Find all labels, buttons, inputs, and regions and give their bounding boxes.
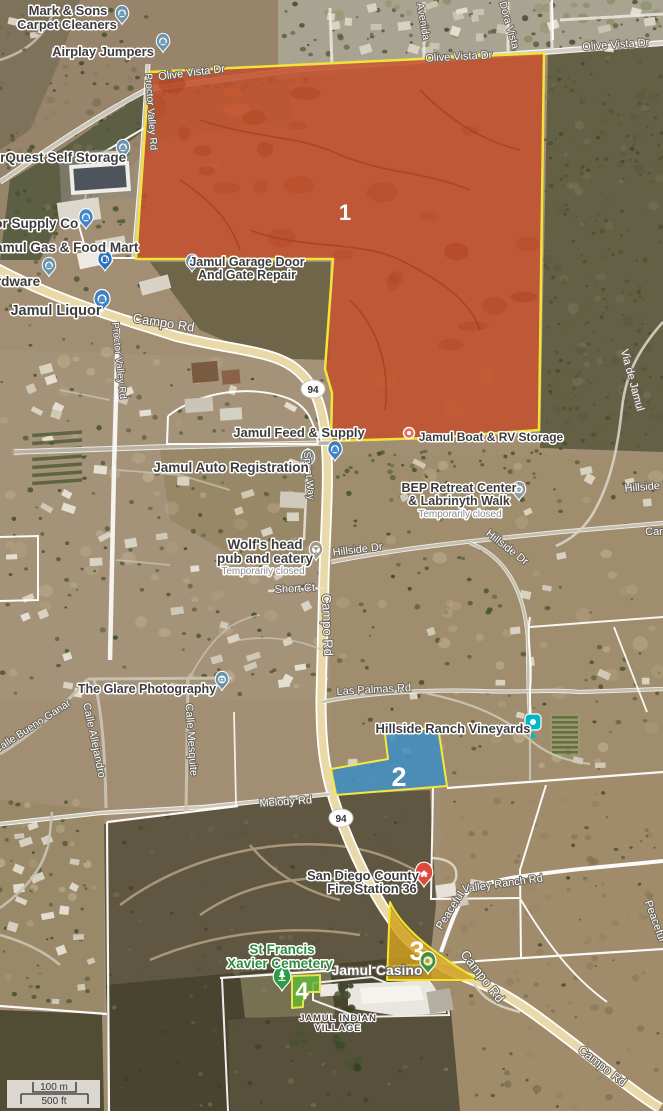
svg-text:rdware: rdware xyxy=(0,274,41,289)
svg-text:Jamul Feed & Supply: Jamul Feed & Supply xyxy=(233,425,365,440)
svg-text:tor Supply Co: tor Supply Co xyxy=(0,216,78,231)
svg-text:Fire Station 36: Fire Station 36 xyxy=(327,881,417,896)
svg-text:Hillside Ranch Vineyards: Hillside Ranch Vineyards xyxy=(375,721,530,736)
svg-text:Jamul Auto Registration: Jamul Auto Registration xyxy=(153,460,309,475)
svg-text:Car: Car xyxy=(645,526,663,538)
svg-text:Airplay Jumpers: Airplay Jumpers xyxy=(52,44,154,59)
svg-text:100 m: 100 m xyxy=(40,1082,68,1093)
svg-text:94: 94 xyxy=(307,385,319,396)
svg-text:St Francis: St Francis xyxy=(249,942,314,957)
svg-text:Jamul Casino: Jamul Casino xyxy=(331,962,422,978)
svg-text:Mark & Sons: Mark & Sons xyxy=(29,3,108,18)
svg-text:VILLAGE: VILLAGE xyxy=(315,1023,362,1034)
svg-text:4: 4 xyxy=(295,978,309,1005)
svg-text:The Glare Photography: The Glare Photography xyxy=(78,682,216,696)
svg-text:Short Ct: Short Ct xyxy=(274,582,315,596)
svg-text:Jamul Liquor: Jamul Liquor xyxy=(10,303,101,319)
svg-text:orQuest Self Storage: orQuest Self Storage xyxy=(0,150,127,165)
svg-text:And Gate Repair: And Gate Repair xyxy=(198,268,296,282)
svg-text:Jamul Garage Door: Jamul Garage Door xyxy=(189,255,304,269)
svg-text:pub and eatery: pub and eatery xyxy=(217,551,314,566)
svg-text:500 ft: 500 ft xyxy=(41,1096,66,1107)
svg-text:Jamul Gas & Food Mart: Jamul Gas & Food Mart xyxy=(0,240,139,255)
svg-text:Wolf's head: Wolf's head xyxy=(228,537,303,552)
svg-text:& Labrinyth Walk: & Labrinyth Walk xyxy=(408,494,510,508)
svg-text:Campo Rd: Campo Rd xyxy=(319,594,336,657)
svg-text:94: 94 xyxy=(335,814,347,825)
svg-text:Carpet Cleaners: Carpet Cleaners xyxy=(17,17,117,32)
svg-text:Xavier Cemetery: Xavier Cemetery xyxy=(227,956,333,971)
svg-text:Temporarily closed: Temporarily closed xyxy=(418,509,501,520)
svg-text:2: 2 xyxy=(391,762,406,792)
svg-text:1: 1 xyxy=(339,200,351,225)
svg-text:Temporarily closed: Temporarily closed xyxy=(221,566,304,577)
svg-text:BEP Retreat Center: BEP Retreat Center xyxy=(401,481,516,495)
svg-text:Jamul Boat & RV Storage: Jamul Boat & RV Storage xyxy=(419,430,564,444)
